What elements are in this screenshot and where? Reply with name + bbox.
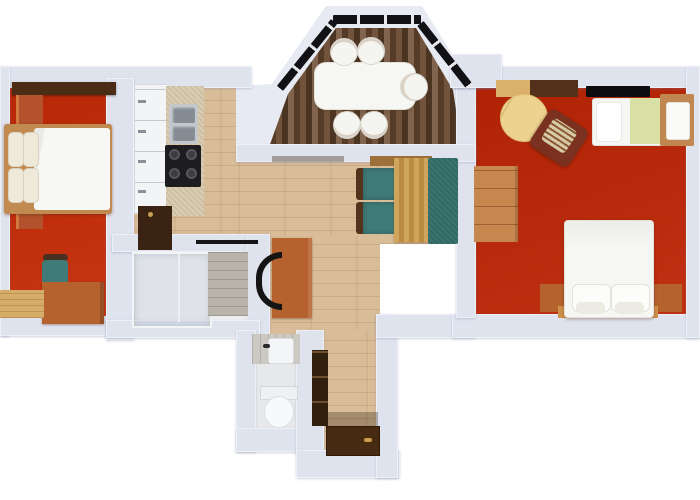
tv bbox=[586, 86, 650, 97]
nook-table bbox=[394, 158, 432, 242]
burner bbox=[169, 149, 180, 160]
dining-doorway-shadow bbox=[272, 156, 344, 162]
dining-chair bbox=[357, 37, 385, 65]
dark-base-cabinet bbox=[138, 206, 172, 250]
cabinet-handle bbox=[138, 190, 146, 193]
glass-shower bbox=[132, 252, 212, 328]
pillow bbox=[23, 168, 39, 203]
entrance-door bbox=[326, 426, 380, 456]
wall-right-room-left bbox=[456, 66, 476, 318]
burner bbox=[169, 168, 180, 179]
hall-shelf bbox=[312, 350, 328, 426]
pillow-small bbox=[615, 302, 644, 314]
bench-sofa bbox=[428, 158, 458, 244]
bench bbox=[0, 290, 44, 318]
desk bbox=[42, 282, 104, 324]
cabinet-knob bbox=[148, 212, 153, 217]
sink-basin bbox=[172, 126, 195, 141]
cabinet-handle bbox=[138, 100, 146, 103]
single-bed-pillow bbox=[596, 102, 622, 142]
shower-glass-edge bbox=[196, 240, 258, 244]
toilet-bowl bbox=[264, 396, 294, 428]
pillow-small bbox=[576, 302, 605, 314]
pillow bbox=[23, 132, 39, 167]
dining-chair bbox=[330, 38, 358, 66]
bay-window-top-icon bbox=[333, 15, 421, 24]
faucet bbox=[263, 344, 270, 348]
sideboard bbox=[474, 166, 518, 242]
door-handle bbox=[364, 438, 372, 442]
nook-chair bbox=[356, 168, 399, 200]
dining-chair bbox=[333, 111, 361, 139]
nook-chair bbox=[356, 202, 399, 234]
shower-divider bbox=[178, 254, 180, 322]
burner bbox=[186, 149, 197, 160]
dining-chair bbox=[400, 73, 428, 101]
pillow bbox=[8, 168, 24, 203]
stone-tile-wall bbox=[208, 252, 248, 316]
duvet bbox=[34, 128, 110, 210]
sink-basin bbox=[172, 107, 195, 123]
pillow bbox=[8, 132, 24, 167]
cabinet-handle bbox=[138, 130, 146, 133]
apartment-floor-plan bbox=[0, 0, 700, 500]
wall-shelf bbox=[12, 82, 116, 95]
dining-chair bbox=[360, 111, 388, 139]
cabinet-handle bbox=[138, 160, 146, 163]
hand-sink bbox=[268, 338, 294, 364]
single-bed-pad bbox=[666, 102, 690, 140]
console-dark bbox=[530, 80, 578, 97]
burner bbox=[186, 168, 197, 179]
single-bed-blanket bbox=[630, 98, 662, 144]
armchair-cushion bbox=[540, 117, 578, 154]
